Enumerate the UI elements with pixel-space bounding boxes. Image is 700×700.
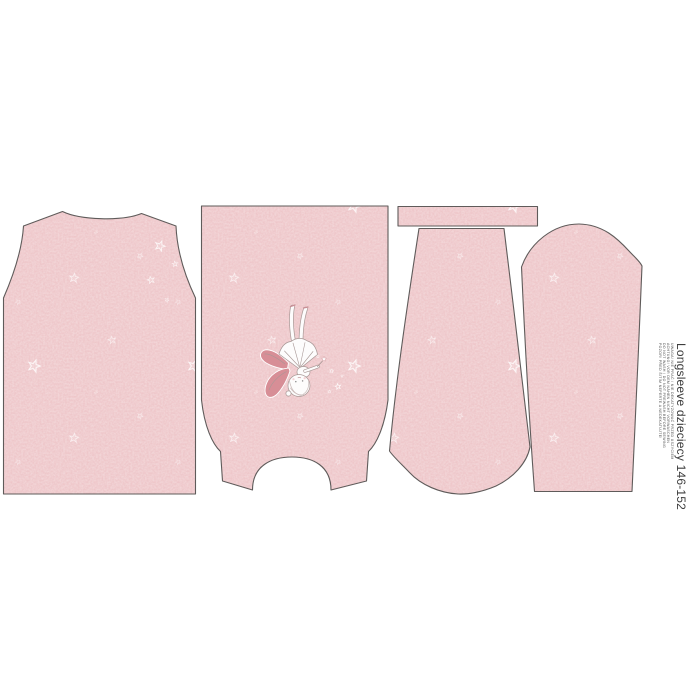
pattern-pieces xyxy=(4,206,643,494)
care-instructions: UWAGA! NIE PRAĆ / NIE DEKATYZOWAĆ PRZED … xyxy=(658,343,673,518)
piece-sleeve-right xyxy=(522,224,643,492)
pattern-pieces-svg xyxy=(0,0,700,700)
piece-sleeve-left xyxy=(390,229,531,495)
piece-neckband-strip xyxy=(398,207,538,227)
care-line: POZOR! PŘED ŠITÍM NEPERTE A NEDEKATUJTE! xyxy=(658,343,662,518)
fabric-panel-preview: Longsleeve dzieciecy 146-152 UWAGA! NIE … xyxy=(0,0,700,700)
selvage-label: Longsleeve dzieciecy 146-152 UWAGA! NIE … xyxy=(658,343,688,518)
piece-back-bodice xyxy=(4,212,196,495)
care-line: DO NOT WASH / DO NOT PREWASH BEFORE SEWI… xyxy=(661,343,665,518)
panel-title: Longsleeve dzieciecy 146-152 xyxy=(674,343,688,518)
